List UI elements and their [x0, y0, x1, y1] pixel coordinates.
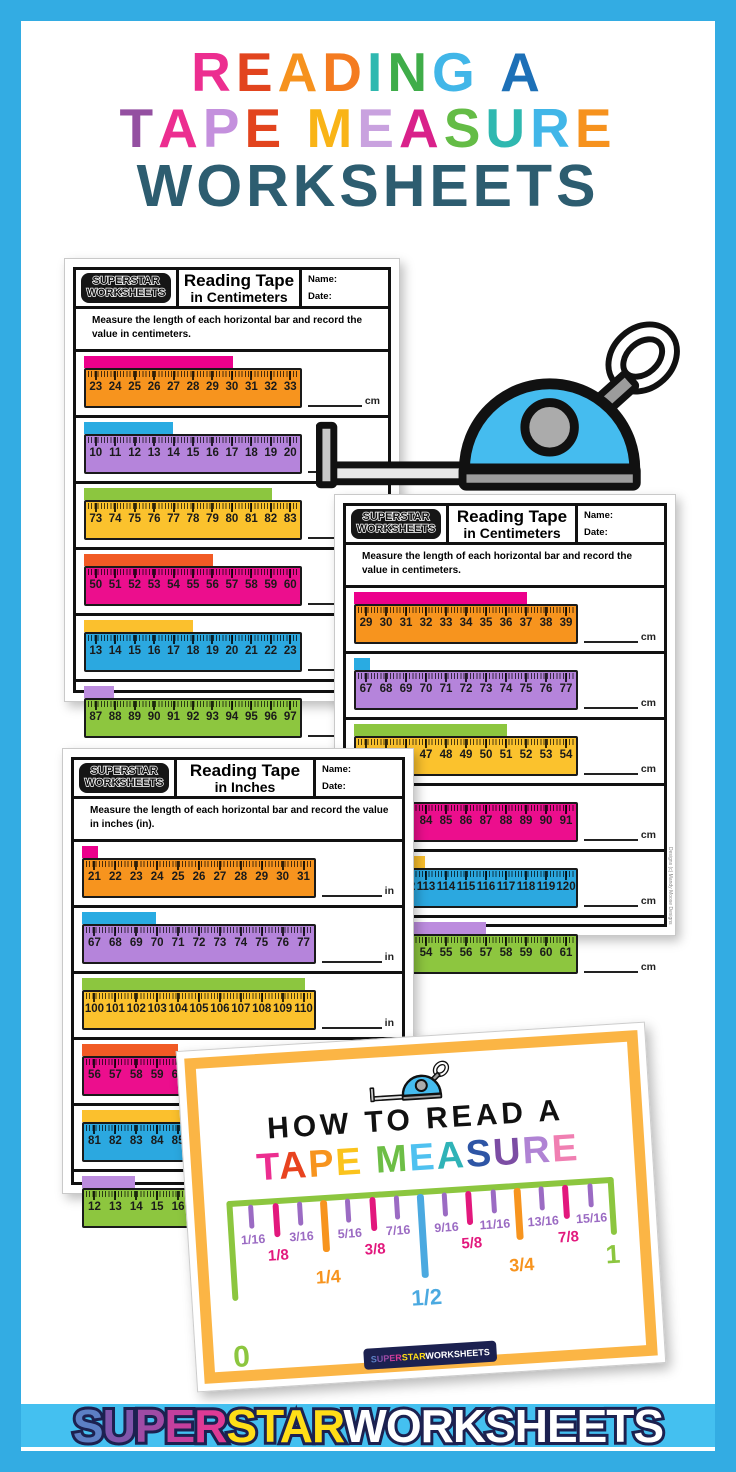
ruler-major-tick [250, 635, 252, 644]
ruler-number: 74 [109, 513, 122, 525]
ruler-major-tick [365, 607, 367, 616]
colored-letter: E [236, 44, 278, 100]
ruler-number: 75 [520, 683, 533, 695]
ruler-major-tick [505, 871, 507, 880]
ruler-number: 17 [226, 447, 239, 459]
ruler-number-cell: 96 [261, 707, 280, 736]
ruler-major-tick [192, 635, 194, 644]
ruler-number: 73 [480, 683, 493, 695]
ruler-number: 58 [500, 947, 513, 959]
ruler-number: 72 [460, 683, 473, 695]
ruler-number-cell: 58 [126, 1065, 147, 1094]
ruler-number: 51 [500, 749, 513, 761]
ruler-number-cell: 59 [147, 1065, 168, 1094]
ruler-number-cell: 56 [84, 1065, 105, 1094]
ruler-and-bar: 5051525354555657585960 [84, 554, 302, 606]
ruler-number: 14 [130, 1201, 143, 1213]
ruler-number: 13 [148, 447, 161, 459]
ruler-major-tick [465, 937, 467, 946]
fraction-tick [490, 1189, 496, 1213]
ruler-number: 28 [187, 381, 200, 393]
ruler-major-tick [385, 607, 387, 616]
ruler-major-tick [114, 1125, 116, 1134]
ruler-number-cell: 90 [144, 707, 163, 736]
superstarworksheets-logo: SUPERSTARWORKSHEETS [73, 1403, 663, 1449]
fraction-tick [466, 1191, 474, 1225]
ruler-number-cell: 37 [516, 613, 536, 642]
ruler-number-cell: 86 [456, 811, 476, 840]
ruler-numbers: 5051525354555657585960 [86, 575, 300, 604]
ruler-major-tick [261, 861, 263, 870]
ruler-number: 69 [400, 683, 413, 695]
fraction-tick [539, 1186, 545, 1210]
ruler-number: 67 [360, 683, 373, 695]
ruler-number: 24 [151, 871, 164, 883]
ruler-number-cell: 97 [281, 707, 300, 736]
ruler-major-tick [95, 701, 97, 710]
ruler-number-cell: 68 [105, 933, 126, 962]
ruler-major-tick [525, 673, 527, 682]
colored-letter: R [530, 100, 575, 156]
ruler-number-cell: 50 [476, 745, 496, 774]
tape-measure-icon [316, 316, 712, 500]
ruler-number: 29 [206, 381, 219, 393]
measure-bar [82, 1176, 135, 1188]
ruler-number-cell: 81 [242, 509, 261, 538]
colored-letter: I [367, 44, 387, 100]
ruler-number-cell: 24 [105, 377, 124, 406]
badge-line-2: WORKSHEETS [87, 288, 166, 300]
colored-letter: A [278, 44, 323, 100]
ruler-number-cell: 52 [516, 745, 536, 774]
ruler-major-tick [135, 1125, 137, 1134]
measure-bar [82, 846, 98, 858]
ruler-number-cell: 114 [436, 877, 456, 906]
ruler-number: 11 [109, 447, 121, 459]
ruler-major-tick [231, 503, 233, 512]
ruler-major-tick [485, 871, 487, 880]
ruler-number: 58 [245, 579, 258, 591]
ruler-number-cell: 20 [281, 443, 300, 472]
ruler-number-cell: 38 [536, 613, 556, 642]
ruler-numbers: 1011121314151617181920 [86, 443, 300, 472]
ruler-number: 56 [460, 947, 473, 959]
ruler-number-cell: 107 [230, 999, 251, 1028]
ruler-number-cell: 49 [456, 745, 476, 774]
ruler-number-cell: 74 [105, 509, 124, 538]
unit-label: cm [641, 631, 656, 643]
ruler-number: 74 [500, 683, 513, 695]
colored-letter: P [203, 100, 245, 156]
fraction-label: 3/16 [289, 1229, 314, 1245]
ruler-number: 81 [245, 513, 258, 525]
ruler-number-cell: 55 [183, 575, 202, 604]
ruler-number-cell: 75 [251, 933, 272, 962]
ruler-number: 31 [245, 381, 258, 393]
ruler-major-tick [156, 1059, 158, 1068]
ruler-number-cell: 31 [293, 867, 314, 896]
answer-blank [584, 895, 638, 907]
ruler-number: 107 [231, 1003, 250, 1015]
colored-letter: D [322, 44, 367, 100]
ruler-number: 90 [148, 711, 161, 723]
ruler-number-cell: 30 [272, 867, 293, 896]
ruler-major-tick [192, 701, 194, 710]
ruler-number: 10 [89, 447, 102, 459]
ruler-number-cell: 57 [105, 1065, 126, 1094]
ruler-number-cell: 29 [203, 377, 222, 406]
ruler-major-tick [405, 607, 407, 616]
ruler-number: 110 [294, 1003, 313, 1015]
ruler-major-tick [135, 861, 137, 870]
ruler-number-cell: 80 [222, 509, 241, 538]
ruler-number: 23 [89, 381, 102, 393]
ruler-major-tick [250, 701, 252, 710]
ruler-number: 87 [480, 815, 493, 827]
footer-brand-strip: SUPERSTARWORKSHEETS [21, 1404, 715, 1447]
ruler-number: 52 [128, 579, 141, 591]
ruler-major-tick [173, 635, 175, 644]
ruler-number: 77 [297, 937, 310, 949]
ruler-numbers: 8788899091929394959697 [86, 707, 300, 736]
worksheet-title-line-2: in Centimeters [190, 290, 287, 305]
ruler-major-tick [134, 635, 136, 644]
ruler-number-cell: 59 [261, 575, 280, 604]
ruler-number: 94 [226, 711, 239, 723]
ruler-major-tick [211, 701, 213, 710]
main-title: READING A TAPE MEASURE WORKSHEETS [0, 44, 736, 216]
name-date-box: Name:Date: [316, 760, 402, 796]
worksheet-header: SUPERSTARWORKSHEETSReading Tapein Centim… [76, 270, 388, 309]
ruler-number-cell: 56 [456, 943, 476, 972]
ruler-number-cell: 92 [183, 707, 202, 736]
ruler-major-tick [445, 871, 447, 880]
ruler-major-tick [565, 739, 567, 748]
ruler: 1011121314151617181920 [84, 434, 302, 474]
colored-letter: R [191, 44, 236, 100]
ruler-major-tick [231, 371, 233, 380]
ruler-number-cell: 53 [536, 745, 556, 774]
ruler-major-tick [365, 739, 367, 748]
ruler: 7374757677787980818283 [84, 500, 302, 540]
ruler-number: 27 [167, 381, 180, 393]
ruler-major-tick [93, 1191, 95, 1200]
ruler: 100101102103104105106107108109110 [82, 990, 316, 1030]
ruler-number: 101 [106, 1003, 125, 1015]
ruler-number-cell: 54 [556, 745, 576, 774]
ruler-number: 105 [189, 1003, 208, 1015]
fraction-tick [513, 1188, 523, 1240]
ruler-major-tick [485, 805, 487, 814]
ruler-number-cell: 52 [125, 575, 144, 604]
ruler-major-tick [231, 437, 233, 446]
ruler-major-tick [114, 993, 116, 1002]
ruler-major-tick [425, 805, 427, 814]
ruler-number-cell: 88 [105, 707, 124, 736]
ruler-major-tick [192, 371, 194, 380]
ruler-number-cell: 16 [203, 443, 222, 472]
colored-letter: A [278, 1144, 310, 1188]
ruler-number: 76 [540, 683, 553, 695]
ruler-number: 85 [440, 815, 453, 827]
ruler-number-cell: 89 [125, 707, 144, 736]
ruler-row: 6768697071727374757677cm [346, 654, 664, 720]
ruler-major-tick [219, 993, 221, 1002]
ruler-major-tick [485, 937, 487, 946]
ruler-number-cell: 108 [251, 999, 272, 1028]
ruler-number: 77 [167, 513, 180, 525]
ruler-and-bar: 1011121314151617181920 [84, 422, 302, 474]
ruler-number: 59 [151, 1069, 164, 1081]
ruler-number: 57 [480, 947, 493, 959]
ruler-number-cell: 19 [261, 443, 280, 472]
colored-letter [286, 100, 306, 156]
ruler-number: 27 [213, 871, 226, 883]
ruler-major-tick [156, 927, 158, 936]
worksheet-title-line-2: in Inches [215, 780, 276, 795]
ruler-number-cell: 14 [105, 641, 124, 670]
tape-measure-illustration [316, 316, 712, 500]
ruler-number-cell: 84 [416, 811, 436, 840]
ruler-number: 14 [109, 645, 122, 657]
ruler-major-tick [250, 503, 252, 512]
answer-blank [584, 829, 638, 841]
logo-segment: WORKSHEETS [343, 1400, 663, 1452]
ruler-major-tick [261, 993, 263, 1002]
ruler-number: 55 [187, 579, 200, 591]
logo-segment: E [165, 1400, 195, 1452]
ruler-number: 76 [276, 937, 289, 949]
ruler-number-cell: 30 [222, 377, 241, 406]
ruler-major-tick [425, 739, 427, 748]
ruler-number-cell: 27 [164, 377, 183, 406]
answer-area: in [322, 1017, 394, 1030]
ruler-number: 50 [89, 579, 102, 591]
ruler-number-cell: 120 [556, 877, 576, 906]
ruler-number: 32 [420, 617, 433, 629]
ruler-number-cell: 87 [86, 707, 105, 736]
superstar-badge: SUPERSTARWORKSHEETS [76, 270, 176, 306]
ruler-number: 77 [560, 683, 573, 695]
ruler-number: 70 [420, 683, 433, 695]
instructions: Measure the length of each horizontal ba… [74, 799, 402, 842]
ruler-major-tick [505, 937, 507, 946]
colored-letter: T [255, 1146, 280, 1189]
ruler-number: 53 [540, 749, 553, 761]
ruler-number-cell: 69 [396, 679, 416, 708]
ruler-number-cell: 100 [84, 999, 105, 1028]
ruler-number: 73 [89, 513, 102, 525]
unit-label: cm [641, 895, 656, 907]
ruler-number-cell: 68 [376, 679, 396, 708]
fraction-label: 5/16 [337, 1226, 362, 1242]
ruler-number: 54 [560, 749, 573, 761]
ruler-number: 31 [297, 871, 310, 883]
ruler-number: 113 [417, 881, 436, 893]
answer-blank [584, 961, 638, 973]
ruler-number: 60 [540, 947, 553, 959]
ruler-number-cell: 29 [251, 867, 272, 896]
ruler-number-cell: 33 [281, 377, 300, 406]
ruler-number: 35 [480, 617, 493, 629]
colored-letter: P [307, 1142, 337, 1186]
measure-bar [84, 356, 233, 368]
ruler-number: 26 [193, 871, 206, 883]
ruler-major-tick [240, 861, 242, 870]
measure-bar [84, 620, 193, 632]
ruler-major-tick [565, 673, 567, 682]
unit-label: in [385, 885, 394, 897]
ruler-number: 54 [420, 947, 433, 959]
ruler-number-cell: 94 [222, 707, 241, 736]
ruler-number: 75 [255, 937, 268, 949]
ruler-number-cell: 85 [436, 811, 456, 840]
ruler-major-tick [282, 993, 284, 1002]
ruler-number-cell: 58 [496, 943, 516, 972]
ruler-number-cell: 58 [242, 575, 261, 604]
measure-bar [82, 1110, 183, 1122]
ruler-number-cell: 72 [189, 933, 210, 962]
colored-letter: E [551, 1127, 581, 1171]
answer-blank [584, 697, 638, 709]
ruler-number: 57 [226, 579, 239, 591]
colored-letter: E [357, 100, 399, 156]
ruler-major-tick [525, 739, 527, 748]
ruler-major-tick [485, 739, 487, 748]
ruler-number-cell: 13 [86, 641, 105, 670]
ruler-number: 120 [556, 881, 575, 893]
ruler-number-cell: 21 [242, 641, 261, 670]
ruler-number: 81 [88, 1135, 101, 1147]
ruler-number: 117 [497, 881, 516, 893]
measure-bar [354, 724, 507, 736]
ruler-number-cell: 60 [281, 575, 300, 604]
ruler-number-cell: 118 [516, 877, 536, 906]
ruler-major-tick [93, 927, 95, 936]
ruler-number: 89 [520, 815, 533, 827]
ruler-major-tick [465, 607, 467, 616]
colored-letter: U [485, 100, 530, 156]
ruler-number-cell: 83 [126, 1131, 147, 1160]
ruler-number: 55 [440, 947, 453, 959]
ruler-major-tick [565, 937, 567, 946]
date-label: Date: [308, 291, 382, 302]
ruler-number: 89 [128, 711, 141, 723]
ruler-number-cell: 119 [536, 877, 556, 906]
ruler-number: 80 [226, 513, 239, 525]
ruler-number-cell: 18 [183, 641, 202, 670]
ruler-number: 51 [109, 579, 122, 591]
ruler-major-tick [156, 1125, 158, 1134]
fraction-tick [369, 1197, 377, 1231]
ruler-number-cell: 14 [126, 1197, 147, 1226]
ruler-number: 53 [148, 579, 161, 591]
superstar-badge-pill: SUPERSTARWORKSHEETS [351, 509, 442, 538]
ruler-number-cell: 25 [168, 867, 189, 896]
ruler-number: 29 [360, 617, 373, 629]
fraction-label: 9/16 [434, 1220, 459, 1236]
ruler-major-tick [93, 1125, 95, 1134]
answer-area: in [322, 951, 394, 964]
ruler-number: 15 [187, 447, 200, 459]
ruler-major-tick [303, 993, 305, 1002]
ruler-major-tick [525, 607, 527, 616]
ruler-number: 59 [264, 579, 277, 591]
answer-area: cm [584, 829, 656, 842]
ruler-number-cell: 75 [125, 509, 144, 538]
colored-letter: S [444, 100, 486, 156]
ruler-number-cell: 15 [125, 641, 144, 670]
fraction-tick [442, 1192, 448, 1216]
ruler-number: 74 [234, 937, 247, 949]
ruler-number-cell: 34 [456, 613, 476, 642]
ruler-number-cell: 15 [183, 443, 202, 472]
logo-segment: R [194, 1400, 226, 1452]
unit-label: cm [641, 697, 656, 709]
ruler-number: 103 [148, 1003, 167, 1015]
ruler-number: 73 [213, 937, 226, 949]
ruler-number-cell: 54 [416, 943, 436, 972]
ruler-number: 30 [226, 381, 239, 393]
measure-bar [84, 422, 173, 434]
ruler-number-cell: 55 [436, 943, 456, 972]
ruler-number-cell: 117 [496, 877, 516, 906]
fraction-label: 1/8 [267, 1246, 289, 1264]
ruler-major-tick [270, 701, 272, 710]
ruler-major-tick [153, 437, 155, 446]
ruler-number: 108 [252, 1003, 271, 1015]
ruler-major-tick [192, 569, 194, 578]
ruler-number-cell: 71 [436, 679, 456, 708]
ruler-number: 30 [276, 871, 289, 883]
colored-letter: A [500, 44, 545, 100]
ruler-major-tick [545, 805, 547, 814]
ruler-number: 60 [284, 579, 297, 591]
ruler-number-cell: 27 [209, 867, 230, 896]
ruler-number-cell: 56 [203, 575, 222, 604]
superstar-badge: SUPERSTARWORKSHEETS [346, 506, 446, 542]
ruler-major-tick [231, 635, 233, 644]
worksheet-title-line-1: Reading Tape [190, 762, 300, 780]
ruler-number-cell: 13 [105, 1197, 126, 1226]
ruler-and-bar: 7374757677787980818283 [84, 488, 302, 540]
ruler-number-cell: 93 [203, 707, 222, 736]
fraction-tick [417, 1194, 429, 1278]
ruler-number-cell: 78 [183, 509, 202, 538]
poster: READING A TAPE MEASURE WORKSHEETS SUPERS… [0, 0, 736, 1472]
ruler-number: 82 [109, 1135, 122, 1147]
ruler-major-tick [156, 993, 158, 1002]
fraction-ruler: 0 1 1/161/83/161/45/163/87/161/29/165/81… [226, 1177, 623, 1367]
ruler-number: 67 [88, 937, 101, 949]
ruler-number-cell: 82 [261, 509, 280, 538]
ruler-number-cell: 74 [230, 933, 251, 962]
ruler-major-tick [211, 437, 213, 446]
ruler-number: 87 [89, 711, 102, 723]
ruler-major-tick [465, 871, 467, 880]
ruler-number: 88 [109, 711, 122, 723]
ruler-number: 57 [109, 1069, 122, 1081]
colored-letter: A [399, 100, 444, 156]
ruler-number-cell: 15 [147, 1197, 168, 1226]
ruler-number-cell: 89 [516, 811, 536, 840]
fraction-tick [394, 1195, 400, 1219]
howto-card: HOW TO READ A TAPE MEASURE 0 1 1/161/83/… [176, 1022, 667, 1393]
ruler-major-tick [135, 1191, 137, 1200]
ruler-major-tick [114, 437, 116, 446]
ruler-number: 25 [172, 871, 185, 883]
ruler-major-tick [173, 701, 175, 710]
